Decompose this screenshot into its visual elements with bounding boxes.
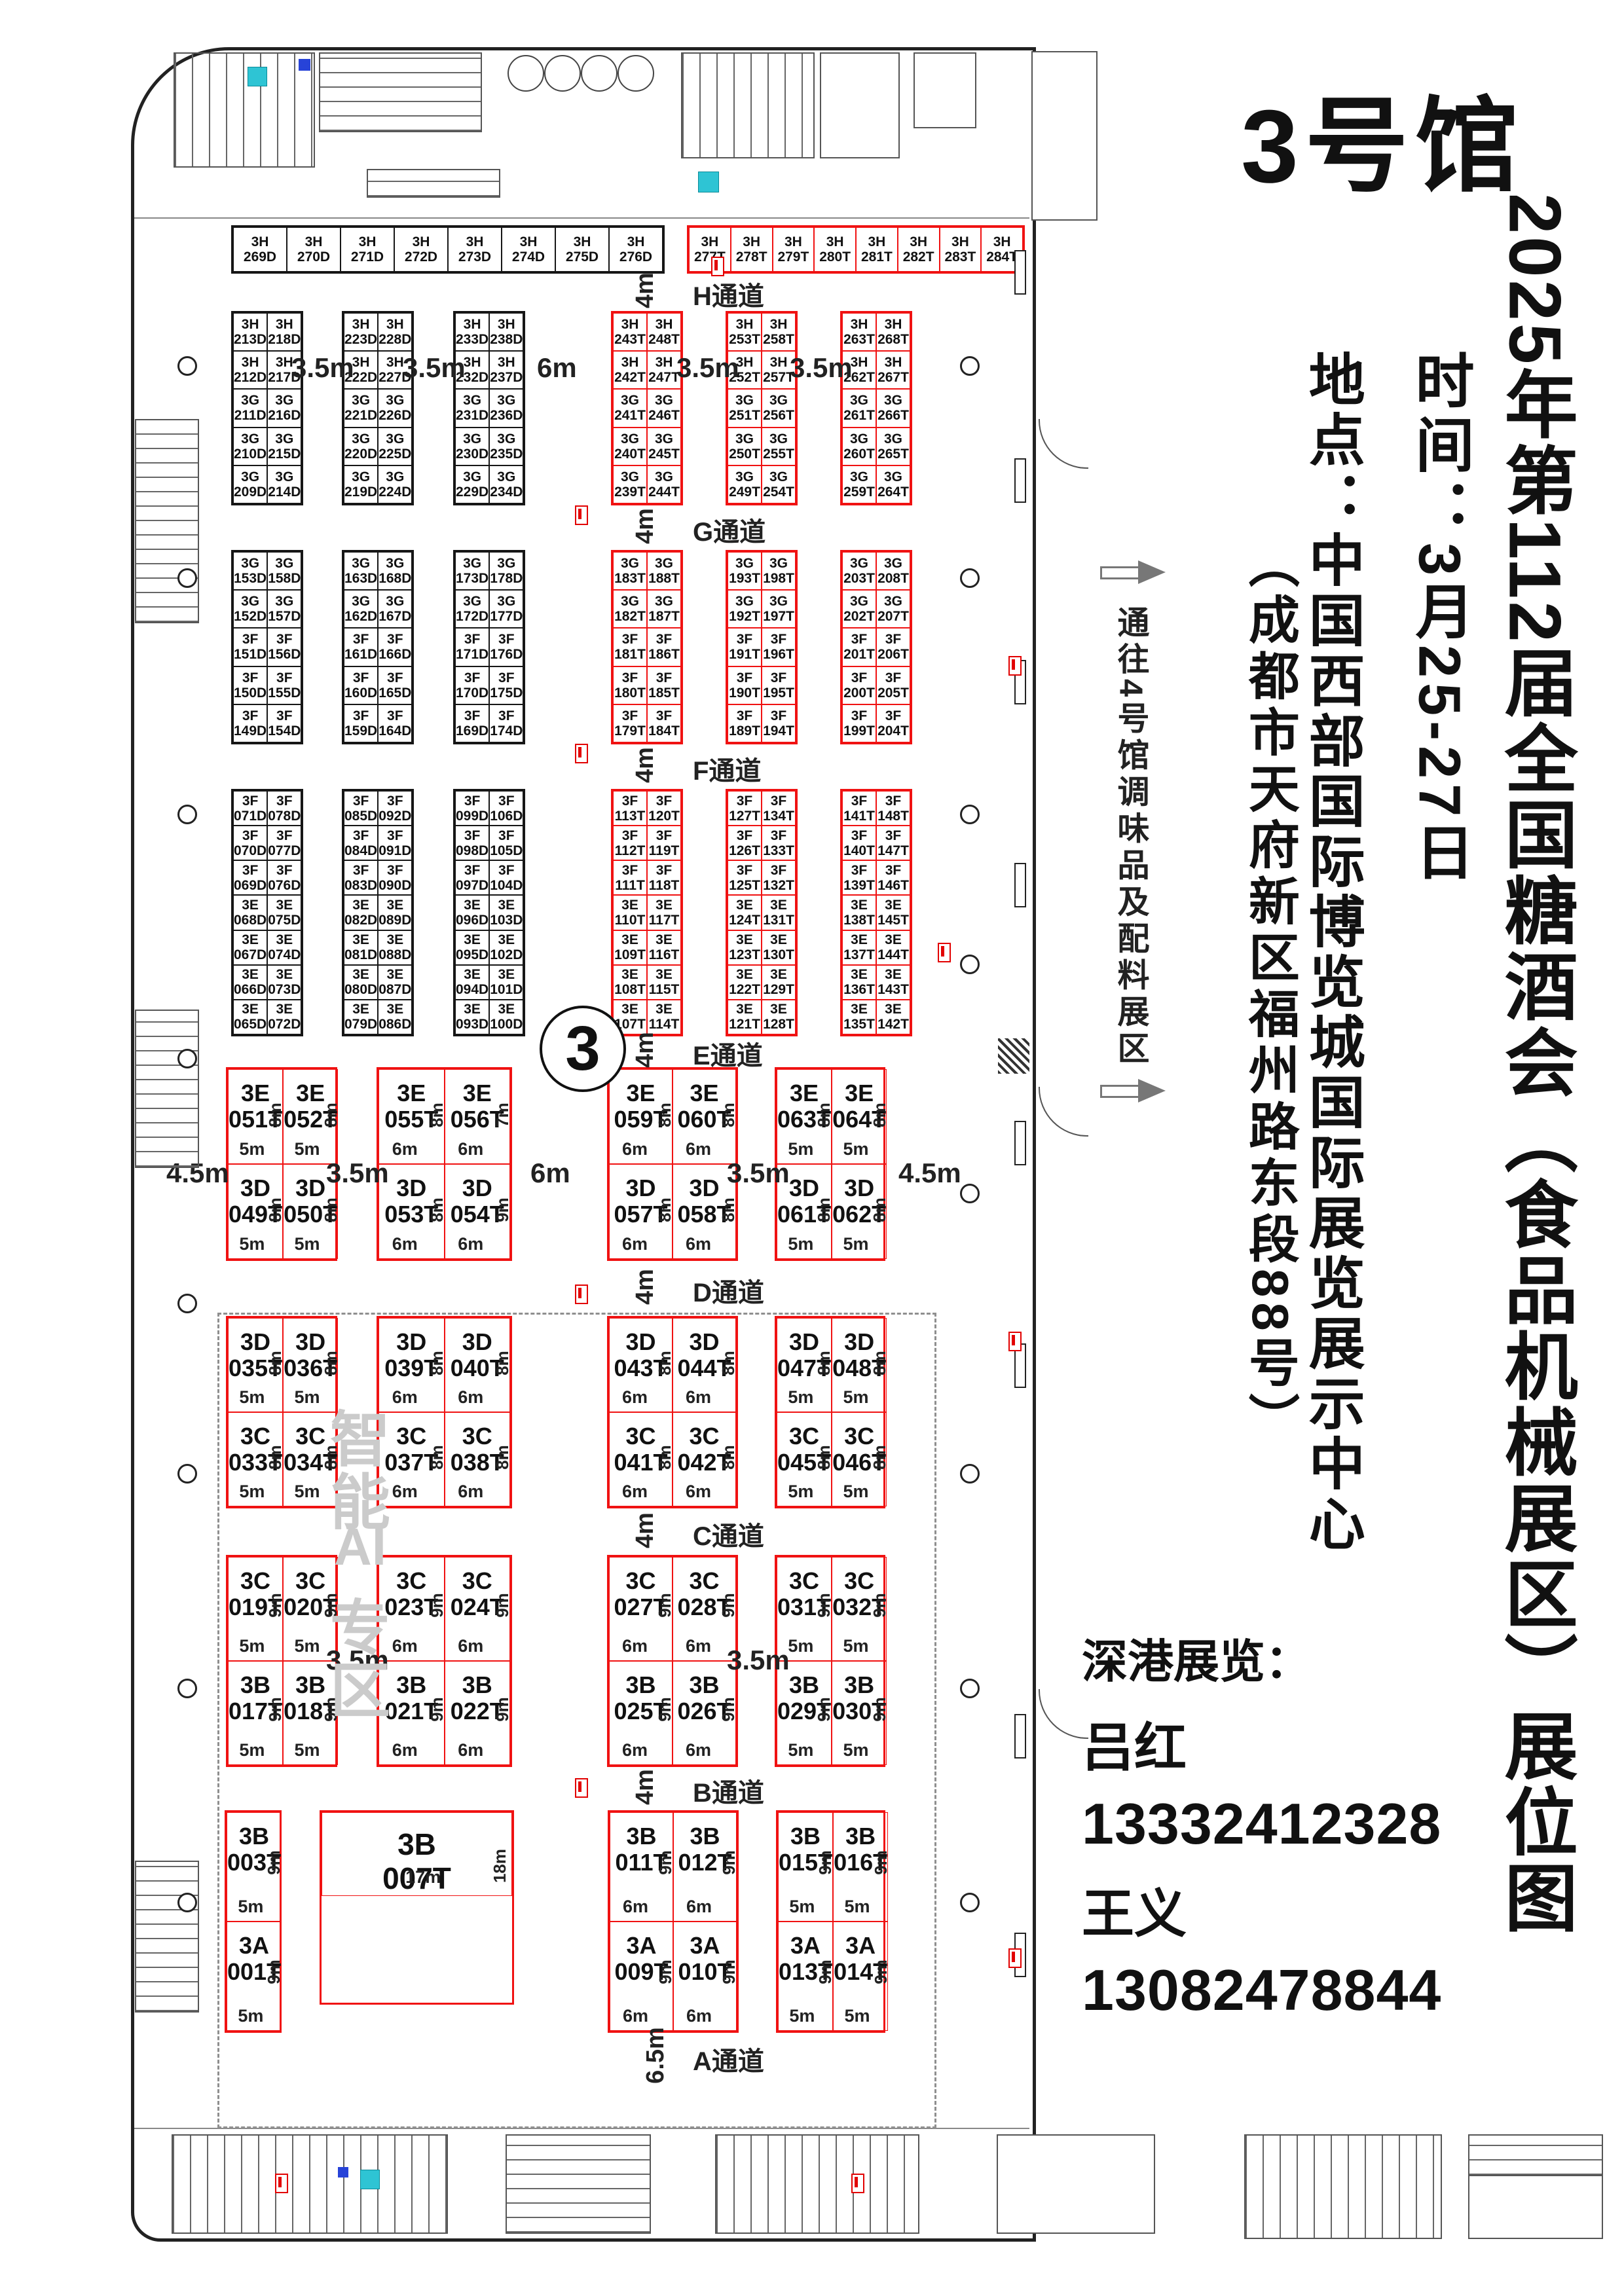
- booth: 3F139T: [842, 860, 876, 895]
- booth: 3C042T8m6m: [673, 1412, 736, 1506]
- ai-zone-watermark: 区: [326, 1643, 394, 1730]
- booth-block: 3C027T9m6m3C028T9m6m3B025T9m6m3B026T9m6m: [607, 1555, 738, 1767]
- booth: 3E079D: [344, 1000, 378, 1034]
- booth: 3H267T: [876, 351, 910, 389]
- booth-block: 3F141T3F148T3F140T3F147T3F139T3F146T3E13…: [840, 789, 912, 1036]
- dim-label: 6m: [530, 1157, 570, 1189]
- booth: 3F149D: [233, 704, 267, 742]
- booth: 3F205T: [876, 666, 910, 704]
- booth: 3C024T9m6m: [445, 1557, 511, 1661]
- booth: 3E115T: [647, 965, 681, 1000]
- booth: 3F097D: [455, 860, 489, 895]
- booth-block: 3G173D3G178D3G172D3G177D3F171D3F176D3F17…: [453, 550, 525, 744]
- dim-label: 6m: [537, 352, 577, 384]
- booth: 3A013T9m5m: [778, 1922, 833, 2031]
- booth: 3F151D: [233, 628, 267, 666]
- booth: 3F185T: [647, 666, 681, 704]
- booth: 3G177D: [489, 590, 523, 628]
- booth: 3B029T9m5m: [777, 1661, 832, 1765]
- booth: 3E059T8m6m: [609, 1069, 673, 1164]
- booth: 3F132T: [762, 860, 796, 895]
- booth: 3H242T: [613, 351, 647, 389]
- booth: 3E100D: [489, 1000, 523, 1034]
- booth: 3G202T: [842, 590, 876, 628]
- booth: 3G208T: [876, 552, 910, 590]
- exit-marker: [851, 2174, 864, 2193]
- door-swing-arc: [1039, 1087, 1088, 1137]
- booth: 3E142T: [876, 1000, 910, 1034]
- booth: 3F186T: [647, 628, 681, 666]
- exit-marker: [1008, 1332, 1022, 1351]
- booth: 3G153D: [233, 552, 267, 590]
- booth: 3F091D: [378, 826, 412, 860]
- booth: 3G211D: [233, 389, 267, 427]
- booth-block: 3F127T3F134T3F126T3F133T3F125T3F132T3E12…: [726, 789, 798, 1036]
- booth: 3E121T: [728, 1000, 762, 1034]
- booth: 3F084D: [344, 826, 378, 860]
- booth: 3E124T: [728, 895, 762, 930]
- booth: 3G193T: [728, 552, 762, 590]
- booth: 3H248T: [647, 313, 681, 351]
- booth: 3H218D: [267, 313, 301, 351]
- booth: 3E122T: [728, 965, 762, 1000]
- hall-title: 3号馆: [1241, 62, 1525, 212]
- booth: 3F105D: [489, 826, 523, 860]
- dim-label: 3.5m: [403, 352, 466, 384]
- booth: 3E093D: [455, 1000, 489, 1034]
- booth: 3F083D: [344, 860, 378, 895]
- booth: 3H213D: [233, 313, 267, 351]
- booth: 3B011T9m6m: [610, 1812, 673, 1922]
- booth: 3G261T: [842, 389, 876, 427]
- booth: 3G260T: [842, 428, 876, 465]
- booth: 3H258T: [762, 313, 796, 351]
- passage-note: 通往4号馆调味品及配料展区: [1113, 606, 1147, 1103]
- booth: 3H237D: [489, 351, 523, 389]
- booth: 3E064T8m5m: [832, 1069, 887, 1164]
- contact2-phone: 13082478844: [1082, 1957, 1441, 2024]
- booth: 3E052T8m5m: [283, 1069, 338, 1164]
- booth: 3G236D: [489, 389, 523, 427]
- exit-marker: [575, 744, 588, 763]
- booth: 3E117T: [647, 895, 681, 930]
- booth-block: 3H253T3H258T3H252T3H257T3G251T3G256T3G25…: [726, 311, 798, 505]
- aisle-dim-label: 4m: [631, 272, 659, 308]
- booth: 3F159D: [344, 704, 378, 742]
- booth: 3F154D: [267, 704, 301, 742]
- aisle-label: A通道: [693, 2040, 764, 2078]
- structure-block: [174, 52, 315, 168]
- arrow-shaft: [1100, 1085, 1139, 1098]
- booth: 3E088D: [378, 930, 412, 965]
- booth: 3E063T8m5m: [777, 1069, 832, 1164]
- booth: 3E143T: [876, 965, 910, 1000]
- booth: 3G157D: [267, 590, 301, 628]
- booth-block: 3F099D3F106D3F098D3F105D3F097D3F104D3E09…: [453, 789, 525, 1036]
- contact2-name: 王义: [1082, 1872, 1441, 1948]
- booth: 3H228D: [378, 313, 412, 351]
- structure-block: [715, 2134, 919, 2234]
- booth-block-large: 3B007T18m17m: [320, 1810, 514, 2005]
- booth: 3F204T: [876, 704, 910, 742]
- column-marker: [960, 1679, 980, 1698]
- structure-block: [820, 52, 900, 158]
- booth: 3H272D: [394, 227, 448, 272]
- booth: 3H269D: [233, 227, 287, 272]
- booth: 3E082D: [344, 895, 378, 930]
- booth: 3E114T: [647, 1000, 681, 1034]
- arrow-right-icon: [1100, 560, 1168, 584]
- structure-block: [681, 52, 815, 158]
- booth: 3B030T9m5m: [832, 1661, 887, 1765]
- column-marker: [960, 1184, 980, 1203]
- booth: 3E080D: [344, 965, 378, 1000]
- column-marker: [960, 1464, 980, 1484]
- booth: 3G250T: [728, 428, 762, 465]
- organizer-label: 深港展览：: [1082, 1625, 1441, 1691]
- door-symbol: [1014, 250, 1026, 295]
- booth: 3H263T: [842, 313, 876, 351]
- booth: 3F194T: [762, 704, 796, 742]
- structure-block: [1031, 51, 1098, 221]
- booth: 3F111T: [613, 860, 647, 895]
- booth: 3G210D: [233, 428, 267, 465]
- hall-number-circle: 3: [540, 1006, 626, 1092]
- booth-block: 3C023T9m6m3C024T9m6m3B021T9m6m3B022T9m6m: [377, 1555, 512, 1767]
- column-marker: [177, 1049, 197, 1068]
- booth: 3F076D: [267, 860, 301, 895]
- booth-block: 3E059T8m6m3E060T8m6m3D057T8m6m3D058T8m6m: [607, 1067, 738, 1261]
- booth: 3H280T: [814, 227, 856, 272]
- booth: 3E095D: [455, 930, 489, 965]
- booth: 3E081D: [344, 930, 378, 965]
- booth-block: 3E063T8m5m3E064T8m5m3D061T8m5m3D062T8m5m: [775, 1067, 885, 1261]
- booth: 3G207T: [876, 590, 910, 628]
- booth: 3G246T: [647, 389, 681, 427]
- venue-vertical: 地点：中国西部国际博览城国际展览展示中心: [1302, 350, 1361, 1673]
- booth: 3D048T8m5m: [832, 1318, 887, 1412]
- column-marker: [960, 955, 980, 974]
- column-marker: [177, 1464, 197, 1484]
- booth: 3G214D: [267, 465, 301, 503]
- dim-label: 4.5m: [898, 1157, 961, 1189]
- booth: 3B012T9m6m: [673, 1812, 737, 1922]
- booth: 3F070D: [233, 826, 267, 860]
- booth: 3H281T: [856, 227, 898, 272]
- booth: 3F199T: [842, 704, 876, 742]
- booth: 3A001T9m5m: [227, 1922, 282, 2031]
- booth: 3E094D: [455, 965, 489, 1000]
- booth-block: 3D035T8m5m3D036T8m5m3C033T8m5m3C034T8m5m: [226, 1316, 337, 1508]
- elevator-marker: [360, 2170, 380, 2189]
- floor-plan-page: 3 3H269D3H270D3H271D3H272D3H273D3H274D3H…: [0, 0, 1624, 2296]
- booth: 3F206T: [876, 628, 910, 666]
- structure-block: [998, 1038, 1029, 1074]
- dim-label: 3.5m: [291, 352, 354, 384]
- booth: 3H282T: [898, 227, 940, 272]
- booth-row-block: 3H269D3H270D3H271D3H272D3H273D3H274D3H27…: [231, 225, 665, 274]
- booth: 3G162D: [344, 590, 378, 628]
- booth: 3E075D: [267, 895, 301, 930]
- booth: 3G163D: [344, 552, 378, 590]
- booth: 3G220D: [344, 428, 378, 465]
- booth: 3G265T: [876, 428, 910, 465]
- booth: 3G230D: [455, 428, 489, 465]
- booth: 3F156D: [267, 628, 301, 666]
- column-marker: [960, 568, 980, 588]
- booth: 3F133T: [762, 826, 796, 860]
- booth: 3F189T: [728, 704, 762, 742]
- booth-block: 3D043T8m6m3D044T8m6m3C041T8m6m3C042T8m6m: [607, 1316, 738, 1508]
- booth: 3G203T: [842, 552, 876, 590]
- dim-label: 3.5m: [727, 1645, 790, 1676]
- booth: 3A010T9m6m: [673, 1922, 737, 2031]
- booth: 3F195T: [762, 666, 796, 704]
- booth: 3E101D: [489, 965, 523, 1000]
- booth: 3G245T: [647, 428, 681, 465]
- booth: 3F191T: [728, 628, 762, 666]
- booth: 3F176D: [489, 628, 523, 666]
- booth: 3G215D: [267, 428, 301, 465]
- booth-block: 3H233D3H238D3H232D3H237D3G231D3G236D3G23…: [453, 311, 525, 505]
- column-marker: [177, 1679, 197, 1698]
- exit-marker: [575, 1285, 588, 1304]
- booth: 3F140T: [842, 826, 876, 860]
- booth: 3E074D: [267, 930, 301, 965]
- structure-block: [135, 1010, 199, 1168]
- booth: 3G249T: [728, 465, 762, 503]
- booth: 3E145T: [876, 895, 910, 930]
- booth: 3H270D: [287, 227, 341, 272]
- booth: 3G226D: [378, 389, 412, 427]
- booth: 3F169D: [455, 704, 489, 742]
- structure-block: [135, 419, 199, 623]
- booth-block: 3F071D3F078D3F070D3F077D3F069D3F076D3E06…: [231, 789, 303, 1036]
- booth: 3E102D: [489, 930, 523, 965]
- booth: 3G152D: [233, 590, 267, 628]
- booth: 3E066D: [233, 965, 267, 1000]
- booth: 3D062T8m5m: [832, 1164, 887, 1259]
- booth: 3F090D: [378, 860, 412, 895]
- booth: 3B025T9m6m: [609, 1661, 673, 1765]
- aisle-label: B通道: [693, 1772, 764, 1810]
- booth: 3F147T: [876, 826, 910, 860]
- booth: 3D054T9m6m: [445, 1164, 511, 1259]
- booth: 3H233D: [455, 313, 489, 351]
- booth: 3G256T: [762, 389, 796, 427]
- booth: 3F104D: [489, 860, 523, 895]
- aisle-label: C通道: [693, 1515, 764, 1553]
- aisle-label: F通道: [693, 750, 761, 788]
- booth: 3H283T: [940, 227, 982, 272]
- column-marker: [960, 356, 980, 376]
- column-marker: [960, 1893, 980, 1912]
- booth-block: 3E051T8m5m3E052T8m5m3D049T8m5m3D050T8m5m: [226, 1067, 337, 1261]
- column-marker: [960, 805, 980, 824]
- door-swing-arc: [1039, 1689, 1088, 1739]
- exit-marker: [275, 2174, 288, 2193]
- booth: 3G264T: [876, 465, 910, 503]
- booth: 3H223D: [344, 313, 378, 351]
- booth: 3E135T: [842, 1000, 876, 1034]
- booth: 3G255T: [762, 428, 796, 465]
- booth: 3C027T9m6m: [609, 1557, 673, 1661]
- booth-block: 3B003T9m5m3A001T9m5m: [225, 1810, 282, 2033]
- booth: 3F127T: [728, 791, 762, 826]
- booth: 3D057T8m6m: [609, 1164, 673, 1259]
- booth: 3E068D: [233, 895, 267, 930]
- booth-block: 3C031T9m5m3C032T9m5m3B029T9m5m3B030T9m5m: [775, 1555, 885, 1767]
- utility-marker: [299, 59, 310, 71]
- booth: 3F160D: [344, 666, 378, 704]
- booth: 3G216D: [267, 389, 301, 427]
- booth: 3H278T: [731, 227, 773, 272]
- booth: 3E137T: [842, 930, 876, 965]
- column-marker: [177, 1294, 197, 1313]
- booth: 3E096D: [455, 895, 489, 930]
- hall-number: 3: [565, 1013, 600, 1085]
- entrance-door-arc: [618, 55, 654, 92]
- dim-label: 3.5m: [790, 352, 853, 384]
- booth: 3G259T: [842, 465, 876, 503]
- booth: 3F119T: [647, 826, 681, 860]
- booth: 3F077D: [267, 826, 301, 860]
- booth: 3E067D: [233, 930, 267, 965]
- booth: 3F179T: [613, 704, 647, 742]
- structure-block: [319, 52, 482, 132]
- exit-marker: [575, 1778, 588, 1798]
- booth: 3C038T8m6m: [445, 1412, 511, 1506]
- booth-row-block: 3H277T3H278T3H279T3H280T3H281T3H282T3H28…: [687, 225, 1025, 274]
- door-symbol: [1014, 863, 1026, 907]
- booth: 3F118T: [647, 860, 681, 895]
- booth: 3G172D: [455, 590, 489, 628]
- booth: 3F112T: [613, 826, 647, 860]
- booth: 3H277T: [689, 227, 731, 272]
- booth: 3F164D: [378, 704, 412, 742]
- booth: 3H279T: [773, 227, 815, 272]
- booth-block: 3G203T3G208T3G202T3G207T3F201T3F206T3F20…: [840, 550, 912, 744]
- booth-block: 3G163D3G168D3G162D3G167D3F161D3F166D3F16…: [342, 550, 414, 744]
- contact1-name: 吕红: [1082, 1705, 1441, 1781]
- booth: 3F155D: [267, 666, 301, 704]
- column-marker: [177, 1893, 197, 1912]
- exit-marker: [938, 943, 951, 962]
- event-title-vertical: 2025年第112届全国糖酒会（食品机械展区）展位图: [1496, 193, 1574, 2282]
- entrance-door-arc: [544, 55, 581, 92]
- booth: 3F148T: [876, 791, 910, 826]
- booth: 3E123T: [728, 930, 762, 965]
- booth: 3H238D: [489, 313, 523, 351]
- booth: 3F180T: [613, 666, 647, 704]
- booth: 3F171D: [455, 628, 489, 666]
- booth: 3E089D: [378, 895, 412, 930]
- aisle-dim-label: 4m: [631, 508, 659, 544]
- booth: 3G231D: [455, 389, 489, 427]
- booth-block: 3D039T8m6m3D040T8m6m3C037T8m6m3C038T8m6m: [377, 1316, 512, 1508]
- booth: 3G209D: [233, 465, 267, 503]
- booth: 3F161D: [344, 628, 378, 666]
- entrance-door-arc: [507, 55, 544, 92]
- booth-block: 3B011T9m6m3B012T9m6m3A009T9m6m3A010T9m6m: [608, 1810, 739, 2033]
- door-swing-arc: [1039, 419, 1088, 469]
- booth: 3F098D: [455, 826, 489, 860]
- booth: 3F085D: [344, 791, 378, 826]
- ai-zone-watermark: AI: [326, 1517, 394, 1577]
- booth: 3C045T8m5m: [777, 1412, 832, 1506]
- booth-block: 3F113T3F120T3F112T3F119T3F111T3F118T3E11…: [611, 789, 683, 1036]
- booth: 3E060T8m6m: [673, 1069, 736, 1164]
- elevator-marker: [248, 67, 267, 86]
- door-symbol: [1014, 458, 1026, 503]
- booth-block: 3H223D3H228D3H222D3H227D3G221D3G226D3G22…: [342, 311, 414, 505]
- booth: 3E065D: [233, 1000, 267, 1034]
- booth: 3G173D: [455, 552, 489, 590]
- booth: 3F078D: [267, 791, 301, 826]
- booth: 3G167D: [378, 590, 412, 628]
- booth: 3D040T8m6m: [445, 1318, 511, 1412]
- booth: 3F170D: [455, 666, 489, 704]
- venue-address-vertical: （成都市天府新区福州路东段88号）: [1243, 537, 1297, 1702]
- booth: 3C033T8m5m: [228, 1412, 283, 1506]
- booth: 3F181T: [613, 628, 647, 666]
- exit-marker: [711, 257, 724, 276]
- contact-block: 深港展览： 吕红 13332412328 王义 13082478844: [1082, 1625, 1441, 2024]
- booth: 3G235D: [489, 428, 523, 465]
- booth: 3F071D: [233, 791, 267, 826]
- booth: 3F150D: [233, 666, 267, 704]
- booth: 3B007T18m17m: [322, 1812, 512, 1896]
- booth: 3B026T9m6m: [673, 1661, 736, 1765]
- aisle-dim-label: 4m: [631, 1269, 659, 1305]
- booth-block: 3F085D3F092D3F084D3F091D3F083D3F090D3E08…: [342, 789, 414, 1036]
- booth: 3E144T: [876, 930, 910, 965]
- aisle-dim-label: 4m: [631, 1032, 659, 1068]
- booth: 3E129T: [762, 965, 796, 1000]
- booth-block: 3G153D3G158D3G152D3G157D3F151D3F156D3F15…: [231, 550, 303, 744]
- booth: 3G198T: [762, 552, 796, 590]
- booth: 3F200T: [842, 666, 876, 704]
- booth-block: 3G183T3G188T3G182T3G187T3F181T3F186T3F18…: [611, 550, 683, 744]
- booth: 3E055T8m6m: [378, 1069, 445, 1164]
- booth: 3G229D: [455, 465, 489, 503]
- booth: 3D043T8m6m: [609, 1318, 673, 1412]
- arrow-head: [1138, 560, 1166, 584]
- contact1-phone: 13332412328: [1082, 1791, 1441, 1857]
- booth: 3C032T9m5m: [832, 1557, 887, 1661]
- elevator-marker: [698, 172, 719, 192]
- booth: 3E073D: [267, 965, 301, 1000]
- booth: 3E130T: [762, 930, 796, 965]
- booth: 3C019T9m5m: [228, 1557, 283, 1661]
- aisle-dim-label: 4m: [631, 1769, 659, 1805]
- aisle-label: E通道: [693, 1034, 763, 1072]
- booth: 3G182T: [613, 590, 647, 628]
- booth: 3G168D: [378, 552, 412, 590]
- booth: 3H275D: [555, 227, 609, 272]
- booth: 3H271D: [341, 227, 394, 272]
- booth: 3G158D: [267, 552, 301, 590]
- column-marker: [177, 568, 197, 588]
- booth: 3F113T: [613, 791, 647, 826]
- exit-marker: [1008, 1948, 1022, 1968]
- booth: 3G225D: [378, 428, 412, 465]
- booth: 3G224D: [378, 465, 412, 503]
- booth: 3F126T: [728, 826, 762, 860]
- booth: 3E051T8m5m: [228, 1069, 283, 1164]
- structure-block: [1244, 2134, 1442, 2239]
- booth: 3G192T: [728, 590, 762, 628]
